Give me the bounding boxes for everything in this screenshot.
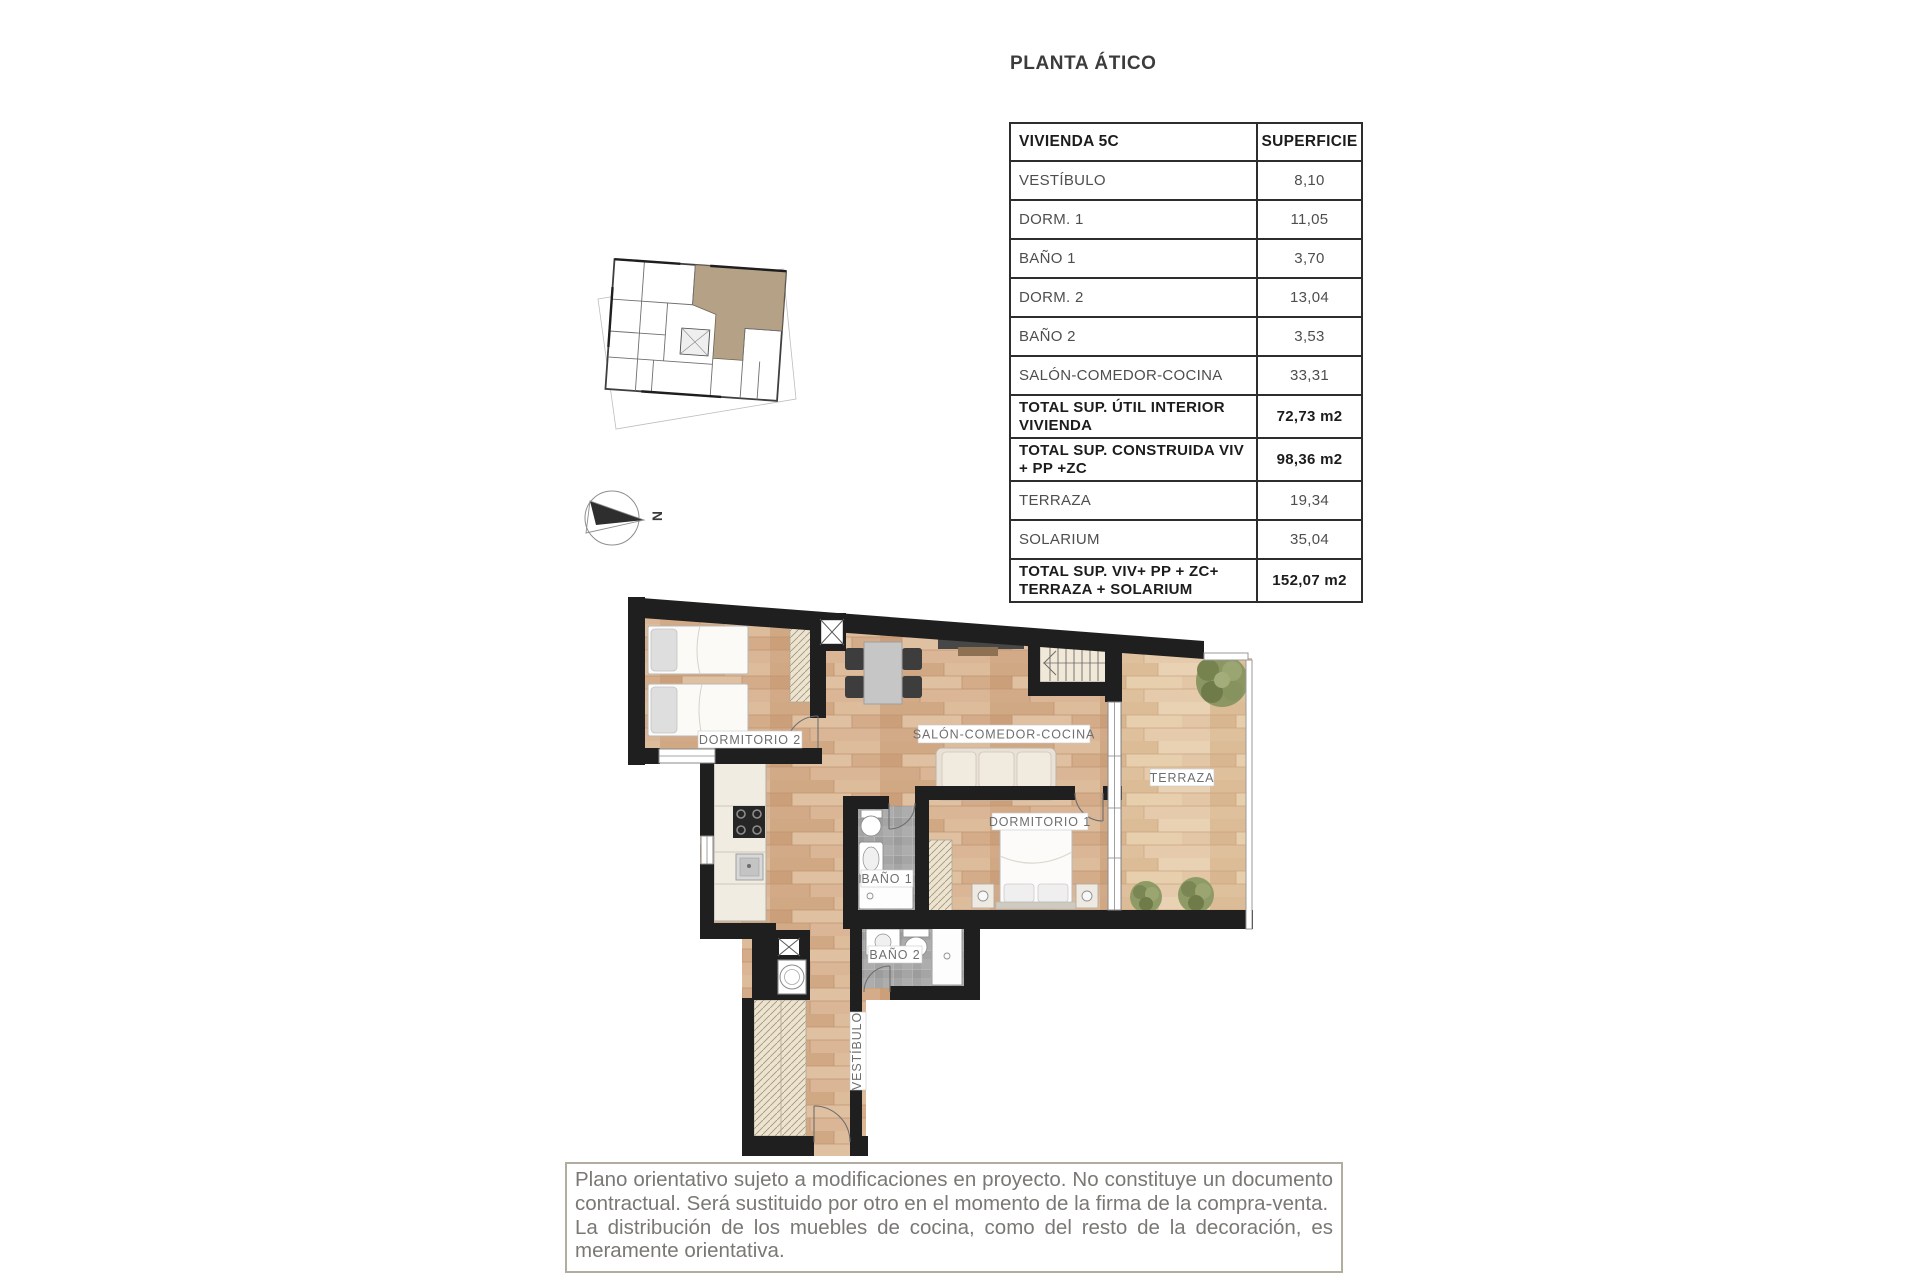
label-dorm2: DORMITORIO 2 bbox=[699, 733, 801, 747]
glass-door-terrace bbox=[1108, 702, 1121, 910]
toilet bbox=[861, 816, 881, 836]
area-value-cell: 72,73 m2 bbox=[1257, 395, 1362, 438]
terrace-tree bbox=[1196, 655, 1248, 707]
area-value-cell: 3,53 bbox=[1257, 317, 1362, 356]
window-kitchen bbox=[701, 836, 713, 864]
single-bed-1 bbox=[648, 626, 748, 674]
key-plan bbox=[595, 253, 810, 449]
table-row: SALÓN-COMEDOR-COCINA 33,31 bbox=[1010, 356, 1362, 395]
area-table-body: VIVIENDA 5C SUPERFICIE VESTÍBULO 8,10 DO… bbox=[1010, 123, 1362, 602]
washing-machine bbox=[778, 960, 806, 994]
table-row: TERRAZA 19,34 bbox=[1010, 481, 1362, 520]
north-compass: N bbox=[578, 480, 678, 556]
table-row: BAÑO 1 3,70 bbox=[1010, 239, 1362, 278]
area-value-cell: 8,10 bbox=[1257, 161, 1362, 200]
page-title: PLANTA ÁTICO bbox=[1010, 53, 1157, 75]
room-label-cell: DORM. 2 bbox=[1010, 278, 1257, 317]
wardrobe-dorm1 bbox=[925, 840, 952, 912]
floor-plan: DORMITORIO 2 SALÓN-COMEDOR-COCINA DORMIT… bbox=[620, 588, 1280, 1168]
label-dorm1: DORMITORIO 1 bbox=[989, 815, 1091, 829]
room-label-cell: DORM. 1 bbox=[1010, 200, 1257, 239]
single-bed-2 bbox=[648, 684, 748, 736]
table-header-surface: SUPERFICIE bbox=[1257, 123, 1362, 161]
area-value-cell: 33,31 bbox=[1257, 356, 1362, 395]
area-value-cell: 19,34 bbox=[1257, 481, 1362, 520]
room-label-cell: TERRAZA bbox=[1010, 481, 1257, 520]
table-row: BAÑO 2 3,53 bbox=[1010, 317, 1362, 356]
room-label-cell: SOLARIUM bbox=[1010, 520, 1257, 559]
table-header-unit: VIVIENDA 5C bbox=[1010, 123, 1257, 161]
wardrobe-dorm2 bbox=[790, 618, 812, 702]
label-terraza: TERRAZA bbox=[1150, 771, 1215, 785]
terrace-bush-2 bbox=[1178, 877, 1214, 913]
window-dorm2 bbox=[659, 749, 715, 763]
room-label-cell: SALÓN-COMEDOR-COCINA bbox=[1010, 356, 1257, 395]
nightstand-left bbox=[972, 884, 994, 908]
table-row: DORM. 1 11,05 bbox=[1010, 200, 1362, 239]
kitchen-counter bbox=[714, 763, 766, 921]
dining-table bbox=[864, 642, 902, 704]
room-label-cell: TOTAL SUP. ÚTIL INTERIOR VIVIENDA bbox=[1010, 395, 1257, 438]
disclaimer-text-2: La distribución de los muebles de cocina… bbox=[575, 1216, 1333, 1264]
area-value-cell: 3,70 bbox=[1257, 239, 1362, 278]
table-header-row: VIVIENDA 5C SUPERFICIE bbox=[1010, 123, 1362, 161]
shaft-2 bbox=[778, 938, 800, 956]
double-bed bbox=[996, 824, 1076, 909]
room-label-cell: TOTAL SUP. CONSTRUIDA VIV + PP +ZC bbox=[1010, 438, 1257, 481]
area-value-cell: 11,05 bbox=[1257, 200, 1362, 239]
table-row: VESTÍBULO 8,10 bbox=[1010, 161, 1362, 200]
label-bano1: BAÑO 1 bbox=[861, 872, 912, 886]
shower-tray-2 bbox=[932, 927, 962, 985]
area-value-cell: 98,36 m2 bbox=[1257, 438, 1362, 481]
north-label: N bbox=[649, 511, 665, 521]
room-label-cell: BAÑO 1 bbox=[1010, 239, 1257, 278]
table-row: SOLARIUM 35,04 bbox=[1010, 520, 1362, 559]
area-value-cell: 13,04 bbox=[1257, 278, 1362, 317]
disclaimer-text-1: Plano orientativo sujeto a modificacione… bbox=[575, 1168, 1333, 1216]
area-value-cell: 35,04 bbox=[1257, 520, 1362, 559]
table-row: TOTAL SUP. ÚTIL INTERIOR VIVIENDA 72,73 … bbox=[1010, 395, 1362, 438]
label-vestibulo: VESTÍBULO bbox=[849, 1012, 864, 1090]
label-bano2: BAÑO 2 bbox=[869, 948, 920, 962]
nightstand-right bbox=[1076, 884, 1098, 908]
wardrobe-hall bbox=[754, 1000, 806, 1136]
label-salon: SALÓN-COMEDOR-COCINA bbox=[913, 727, 1096, 742]
toilet-tank-2 bbox=[903, 929, 929, 937]
terrace-bush-1 bbox=[1130, 881, 1162, 913]
disclaimer-box: Plano orientativo sujeto a modificacione… bbox=[565, 1162, 1343, 1273]
table-row: DORM. 2 13,04 bbox=[1010, 278, 1362, 317]
key-plan-building bbox=[605, 259, 786, 401]
table-row: TOTAL SUP. CONSTRUIDA VIV + PP +ZC 98,36… bbox=[1010, 438, 1362, 481]
room-label-cell: BAÑO 2 bbox=[1010, 317, 1257, 356]
shaft-1 bbox=[820, 619, 844, 645]
areas-table: VIVIENDA 5C SUPERFICIE VESTÍBULO 8,10 DO… bbox=[1009, 122, 1363, 603]
room-label-cell: VESTÍBULO bbox=[1010, 161, 1257, 200]
